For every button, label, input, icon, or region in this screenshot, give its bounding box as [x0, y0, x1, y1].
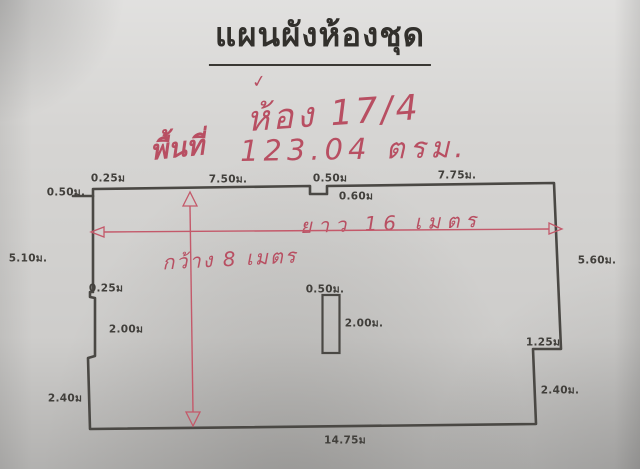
- dimension-label: 0.50ม: [313, 170, 347, 187]
- dimension-label: 5.10ม.: [9, 250, 48, 267]
- width-arrow-top-icon: [183, 192, 197, 206]
- width-arrow-bottom-icon: [186, 412, 200, 426]
- dimension-label: 7.50ม.: [209, 171, 248, 188]
- dimension-label: 2.00ม.: [345, 315, 384, 332]
- dimension-label: 0.50ม.: [306, 281, 345, 298]
- dimension-label: 2.40ม: [48, 390, 82, 407]
- dimension-label: 0.25ม: [89, 280, 123, 297]
- width-dimension-line: [190, 206, 193, 412]
- dimension-label: 0.25ม: [91, 170, 125, 187]
- column-rect: [323, 295, 340, 353]
- length-dimension-line: [104, 229, 549, 232]
- dimension-label: 0.50ม.: [47, 184, 86, 201]
- unit-outline-path: [88, 183, 561, 429]
- dimension-label: 7.75ม.: [438, 167, 477, 184]
- dimension-label: 14.75ม: [324, 432, 366, 449]
- scanned-floor-plan-document: แผนผังห้องชุด ✓ ห้อง 17/4 พื้นที่ 123.04…: [0, 0, 640, 469]
- dimension-label: 5.60ม.: [578, 252, 617, 269]
- dimension-label: 0.60ม: [339, 188, 373, 205]
- dimension-label: 1.25ม: [526, 334, 560, 351]
- floor-plan-drawing: [0, 0, 640, 469]
- dimension-label: 2.40ม.: [541, 382, 580, 399]
- dimension-label: 2.00ม: [109, 321, 143, 338]
